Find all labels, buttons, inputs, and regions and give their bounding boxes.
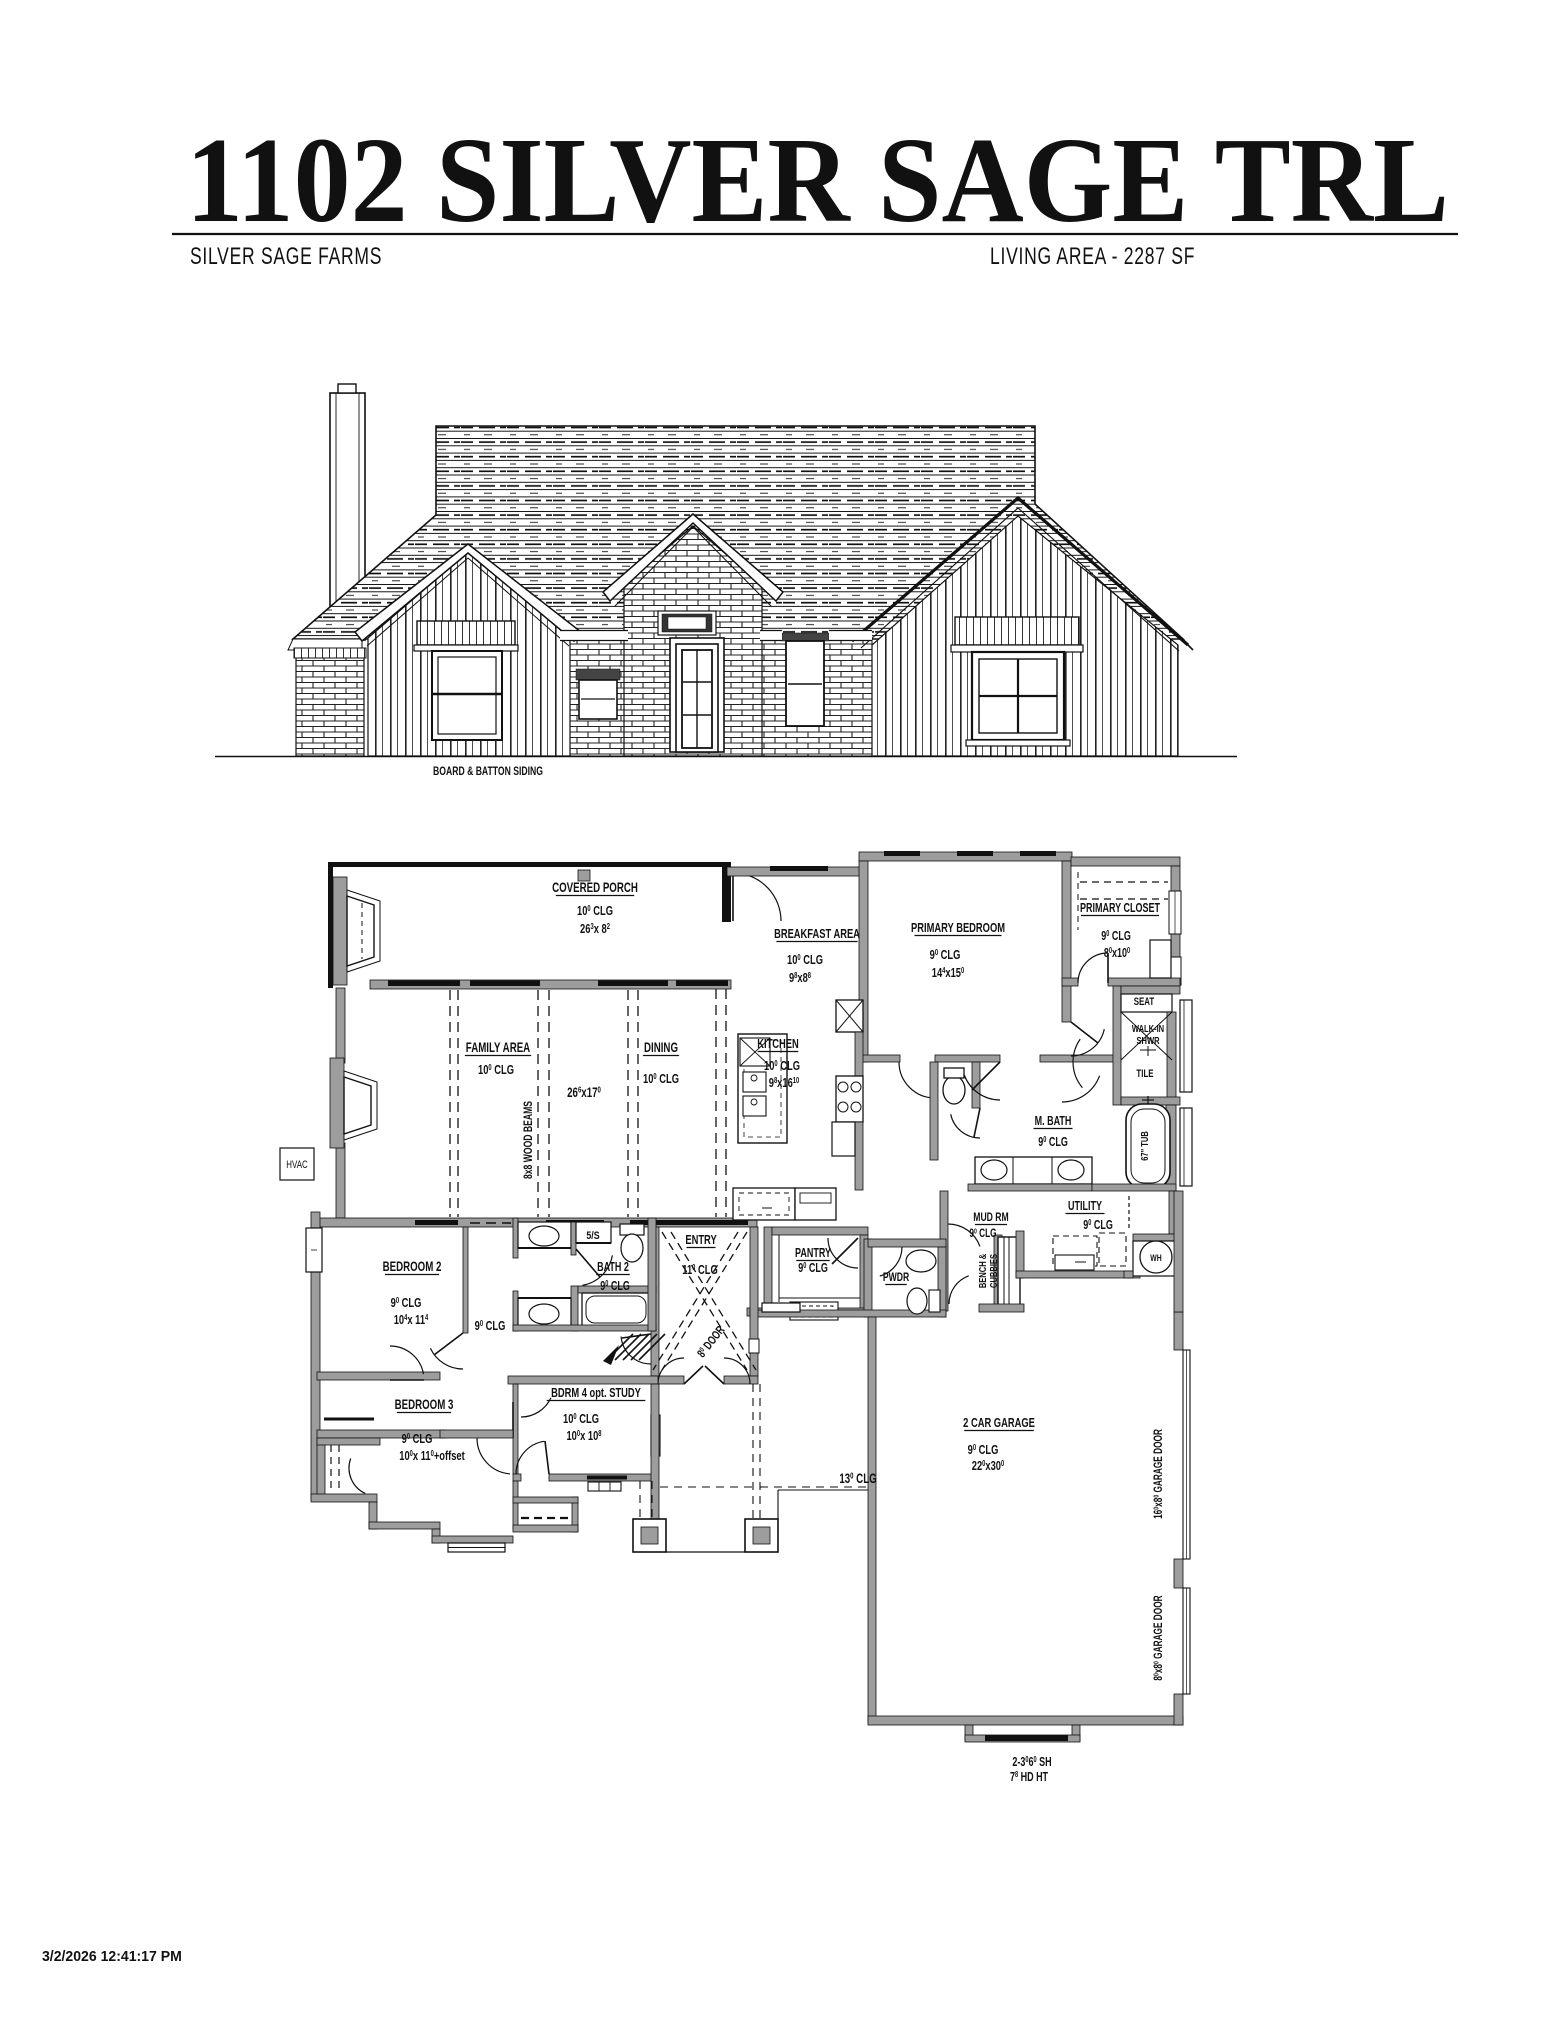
svg-text:100​ CLG: 100​ CLG <box>787 954 823 968</box>
svg-text:1102 SILVER SAGE TRL: 1102 SILVER SAGE TRL <box>186 113 1449 248</box>
svg-text:BOARD & BATTON SIDING: BOARD & BATTON SIDING <box>433 766 543 779</box>
svg-text:BENCH &: BENCH & <box>977 1253 988 1288</box>
svg-text:67" TUB: 67" TUB <box>1139 1131 1150 1161</box>
svg-text:KITCHEN: KITCHEN <box>757 1038 799 1052</box>
svg-text:2 CAR GARAGE: 2 CAR GARAGE <box>963 1417 1035 1431</box>
svg-text:104​x 114​: 104​x 114​ <box>394 1314 429 1328</box>
svg-text:90​ CLG: 90​ CLG <box>969 1228 996 1241</box>
svg-text:DINING: DINING <box>644 1041 678 1056</box>
svg-text:UTILITY: UTILITY <box>1068 1200 1103 1214</box>
svg-text:90​ CLG: 90​ CLG <box>1038 1136 1068 1150</box>
svg-text:80​x80​ GARAGE DOOR: 80​x80​ GARAGE DOOR <box>1153 1595 1166 1681</box>
svg-text:90​ CLG: 90​ CLG <box>798 1262 828 1276</box>
svg-text:MUD RM: MUD RM <box>973 1212 1008 1225</box>
svg-text:ENTRY: ENTRY <box>685 1234 717 1248</box>
svg-text:5/S: 5/S <box>586 1230 600 1242</box>
svg-text:2-30​60​ SH: 2-30​60​ SH <box>1012 1756 1051 1770</box>
svg-text:BEDROOM 2: BEDROOM 2 <box>383 1260 442 1275</box>
svg-text:90​ CLG: 90​ CLG <box>1083 1219 1113 1233</box>
svg-text:8x8 WOOD BEAMS: 8x8 WOOD BEAMS <box>523 1101 536 1179</box>
svg-text:PANTRY: PANTRY <box>795 1247 832 1261</box>
svg-text:WALK-IN: WALK-IN <box>1132 1023 1164 1034</box>
svg-text:90​ CLG: 90​ CLG <box>600 1280 630 1294</box>
svg-text:220​x300​: 220​x300​ <box>972 1460 1005 1474</box>
svg-text:M. BATH: M. BATH <box>1035 1115 1072 1129</box>
svg-text:CUBBIES: CUBBIES <box>988 1254 999 1288</box>
svg-text:HVAC: HVAC <box>286 1159 307 1172</box>
svg-text:100​ CLG: 100​ CLG <box>563 1413 599 1427</box>
svg-text:80​x100​: 80​x100​ <box>1104 947 1130 961</box>
svg-text:100​ CLG: 100​ CLG <box>764 1060 800 1074</box>
svg-text:90​ CLG: 90​ CLG <box>1101 930 1131 944</box>
svg-text:130​ CLG: 130​ CLG <box>839 1471 876 1487</box>
svg-text:100​ CLG: 100​ CLG <box>643 1073 679 1087</box>
svg-text:BEDROOM 3: BEDROOM 3 <box>395 1398 454 1413</box>
svg-text:PRIMARY CLOSET: PRIMARY CLOSET <box>1080 902 1160 916</box>
svg-text:90​ CLG: 90​ CLG <box>402 1433 433 1447</box>
svg-text:3/2/2026 12:41:17 PM: 3/2/2026 12:41:17 PM <box>42 1949 182 1965</box>
svg-text:100​ CLG: 100​ CLG <box>577 905 613 919</box>
svg-text:COVERED PORCH: COVERED PORCH <box>552 881 638 896</box>
svg-text:BDRM 4 opt. STUDY: BDRM 4 opt. STUDY <box>551 1387 641 1401</box>
svg-text:PWDR: PWDR <box>883 1272 910 1285</box>
svg-text:BATH 2: BATH 2 <box>597 1261 629 1275</box>
svg-text:90​ CLG: 90​ CLG <box>391 1297 422 1311</box>
svg-text:263​x 82​: 263​x 82​ <box>580 923 610 937</box>
svg-text:PRIMARY BEDROOM: PRIMARY BEDROOM <box>911 922 1005 936</box>
svg-text:266​x170​: 266​x170​ <box>567 1085 601 1101</box>
svg-text:100​x 108​: 100​x 108​ <box>566 1430 601 1444</box>
svg-text:LIVING AREA - 2287 SF: LIVING AREA - 2287 SF <box>990 243 1195 269</box>
svg-text:TILE: TILE <box>1136 1068 1154 1081</box>
svg-text:160​x80​ GARAGE DOOR: 160​x80​ GARAGE DOOR <box>1153 1428 1166 1518</box>
svg-text:100​ CLG: 100​ CLG <box>478 1064 514 1078</box>
svg-text:90​ CLG: 90​ CLG <box>968 1444 999 1458</box>
svg-text:BREAKFAST AREA: BREAKFAST AREA <box>774 928 860 942</box>
svg-text:144​x150​: 144​x150​ <box>932 967 965 981</box>
svg-text:SEAT: SEAT <box>1134 996 1155 1009</box>
svg-text:110​ CLG: 110​ CLG <box>682 1264 718 1278</box>
svg-text:FAMILY AREA: FAMILY AREA <box>466 1041 531 1056</box>
svg-text:90​ CLG: 90​ CLG <box>475 1320 506 1334</box>
svg-text:WH: WH <box>1150 1253 1161 1263</box>
svg-text:SILVER SAGE FARMS: SILVER SAGE FARMS <box>190 243 382 269</box>
svg-text:90​ CLG: 90​ CLG <box>930 949 961 963</box>
svg-text:SHWR: SHWR <box>1136 1035 1159 1046</box>
svg-text:98​x88​: 98​x88​ <box>789 972 811 986</box>
